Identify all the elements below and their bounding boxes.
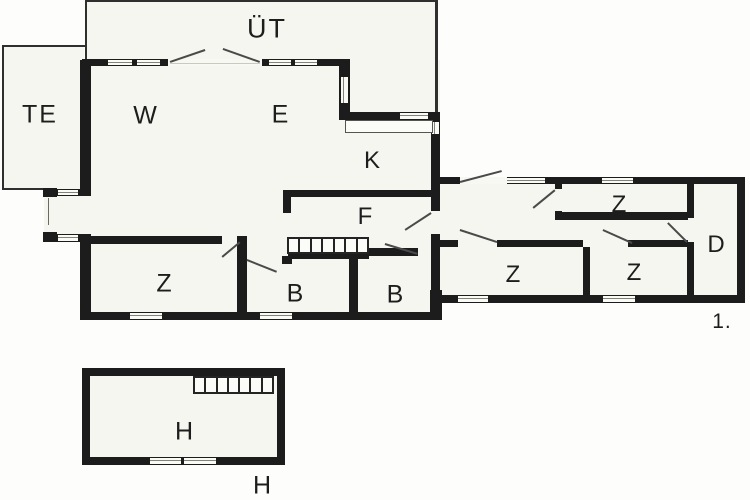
terrace-edge — [2, 45, 85, 47]
stair-step — [323, 239, 334, 252]
room-label-te: TE — [22, 101, 58, 130]
wall — [628, 240, 688, 247]
wall — [80, 60, 91, 196]
stair-step — [218, 378, 229, 392]
window — [458, 296, 488, 302]
stair-step — [312, 239, 323, 252]
wall — [80, 240, 91, 318]
window — [269, 60, 291, 65]
stairs — [193, 376, 274, 394]
wall — [237, 236, 247, 314]
threshold-line — [170, 63, 260, 64]
window — [150, 458, 181, 464]
room-label-h: H — [175, 418, 195, 447]
stair-step — [346, 239, 357, 252]
window — [58, 235, 78, 241]
room-fill-wing — [435, 177, 745, 303]
room-label-z-right: Z — [627, 259, 644, 287]
wall — [283, 190, 433, 197]
window — [108, 60, 132, 65]
window — [507, 178, 545, 183]
window — [260, 313, 292, 319]
stair-step — [289, 239, 300, 252]
room-label-k: K — [364, 147, 382, 175]
stair-step — [195, 378, 206, 392]
window — [602, 178, 633, 183]
wall — [687, 242, 694, 297]
terrace-edge — [435, 0, 438, 115]
stair-step — [229, 378, 240, 392]
window — [400, 113, 428, 119]
stair-step — [240, 378, 251, 392]
terrace-edge — [2, 188, 44, 190]
stair-step — [206, 378, 217, 392]
caption-h-building: H — [253, 472, 273, 500]
room-label-b-right: B — [387, 281, 406, 310]
wall — [82, 368, 285, 376]
room-label-d: D — [707, 231, 726, 259]
window — [432, 122, 439, 134]
window — [341, 77, 348, 103]
room-label-z-top: Z — [612, 191, 629, 219]
wall — [282, 256, 292, 264]
wall — [497, 240, 583, 247]
window — [137, 60, 160, 65]
window — [184, 458, 216, 464]
stair-step — [335, 239, 346, 252]
room-label-e: E — [272, 101, 291, 130]
door-leaf — [48, 198, 49, 225]
room-label-b-left: B — [287, 280, 306, 309]
wall — [349, 252, 358, 314]
kitchen-counter — [345, 120, 433, 133]
room-label-z-mid: Z — [506, 261, 523, 289]
wall — [82, 368, 90, 465]
wall — [687, 184, 694, 218]
wall — [283, 197, 291, 213]
stair-step — [300, 239, 311, 252]
room-label-ut: ÜT — [247, 14, 287, 45]
room-label-w: W — [133, 102, 159, 131]
floor-plan: ÜT TE W E K F Z B B Z Z Z D H H 1. — [0, 0, 750, 500]
window — [295, 60, 317, 65]
stair-step — [358, 239, 367, 252]
window — [603, 296, 635, 302]
caption-floor-number: 1. — [712, 310, 732, 334]
terrace-edge — [85, 0, 87, 62]
stairs — [287, 237, 369, 254]
wall — [277, 368, 285, 465]
wall — [737, 177, 745, 303]
stair-step — [251, 378, 262, 392]
wall — [555, 184, 562, 189]
wall — [431, 184, 440, 211]
room-label-f: F — [358, 203, 375, 231]
wall — [440, 240, 458, 247]
window — [58, 190, 78, 195]
wall — [583, 247, 590, 297]
terrace-edge — [85, 0, 437, 2]
window — [130, 313, 162, 319]
wall — [88, 236, 222, 244]
room-label-z-left: Z — [156, 270, 173, 299]
terrace-edge — [2, 45, 4, 190]
stair-step — [263, 378, 272, 392]
